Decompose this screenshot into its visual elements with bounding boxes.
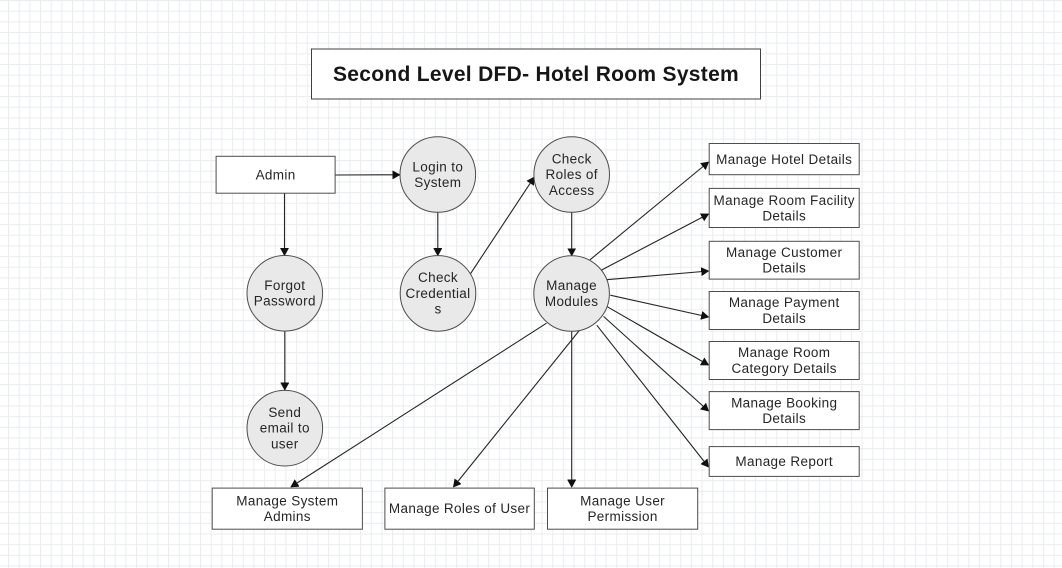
svg-text:Permission: Permission (587, 509, 657, 524)
svg-text:Manage System: Manage System (236, 493, 338, 508)
svg-text:Modules: Modules (545, 294, 598, 309)
svg-text:Category Details: Category Details (731, 361, 836, 376)
svg-text:Manage: Manage (546, 278, 597, 293)
svg-text:System: System (414, 175, 461, 190)
svg-text:Admins: Admins (264, 509, 311, 524)
svg-text:Login to: Login to (412, 160, 463, 175)
svg-text:s: s (434, 302, 441, 317)
svg-text:Manage Booking: Manage Booking (731, 395, 837, 410)
svg-text:Admin: Admin (256, 167, 296, 182)
svg-text:email to: email to (260, 421, 310, 436)
svg-text:user: user (271, 436, 299, 451)
svg-text:Details: Details (762, 311, 806, 326)
svg-text:Manage Report: Manage Report (735, 454, 833, 469)
svg-text:Manage Roles of User: Manage Roles of User (389, 501, 530, 516)
svg-text:Manage Room: Manage Room (738, 345, 830, 360)
svg-text:Check: Check (418, 270, 458, 285)
svg-text:Manage Room Facility: Manage Room Facility (714, 193, 855, 208)
svg-text:Details: Details (762, 411, 806, 426)
svg-text:Manage Hotel Details: Manage Hotel Details (716, 152, 852, 167)
svg-text:Details: Details (762, 261, 806, 276)
svg-text:Manage Customer: Manage Customer (726, 245, 842, 260)
svg-text:Credential: Credential (405, 286, 470, 301)
svg-text:Send: Send (268, 405, 301, 420)
svg-text:Access: Access (549, 183, 595, 198)
svg-text:Roles of: Roles of (546, 167, 598, 182)
svg-text:Forgot: Forgot (264, 278, 305, 293)
svg-text:Manage Payment: Manage Payment (729, 295, 840, 310)
svg-text:Manage User: Manage User (580, 493, 665, 508)
svg-text:Details: Details (762, 209, 806, 224)
svg-text:Password: Password (254, 294, 316, 309)
svg-text:Check: Check (552, 152, 592, 167)
svg-text:Second Level DFD- Hotel Room S: Second Level DFD- Hotel Room System (333, 63, 739, 86)
